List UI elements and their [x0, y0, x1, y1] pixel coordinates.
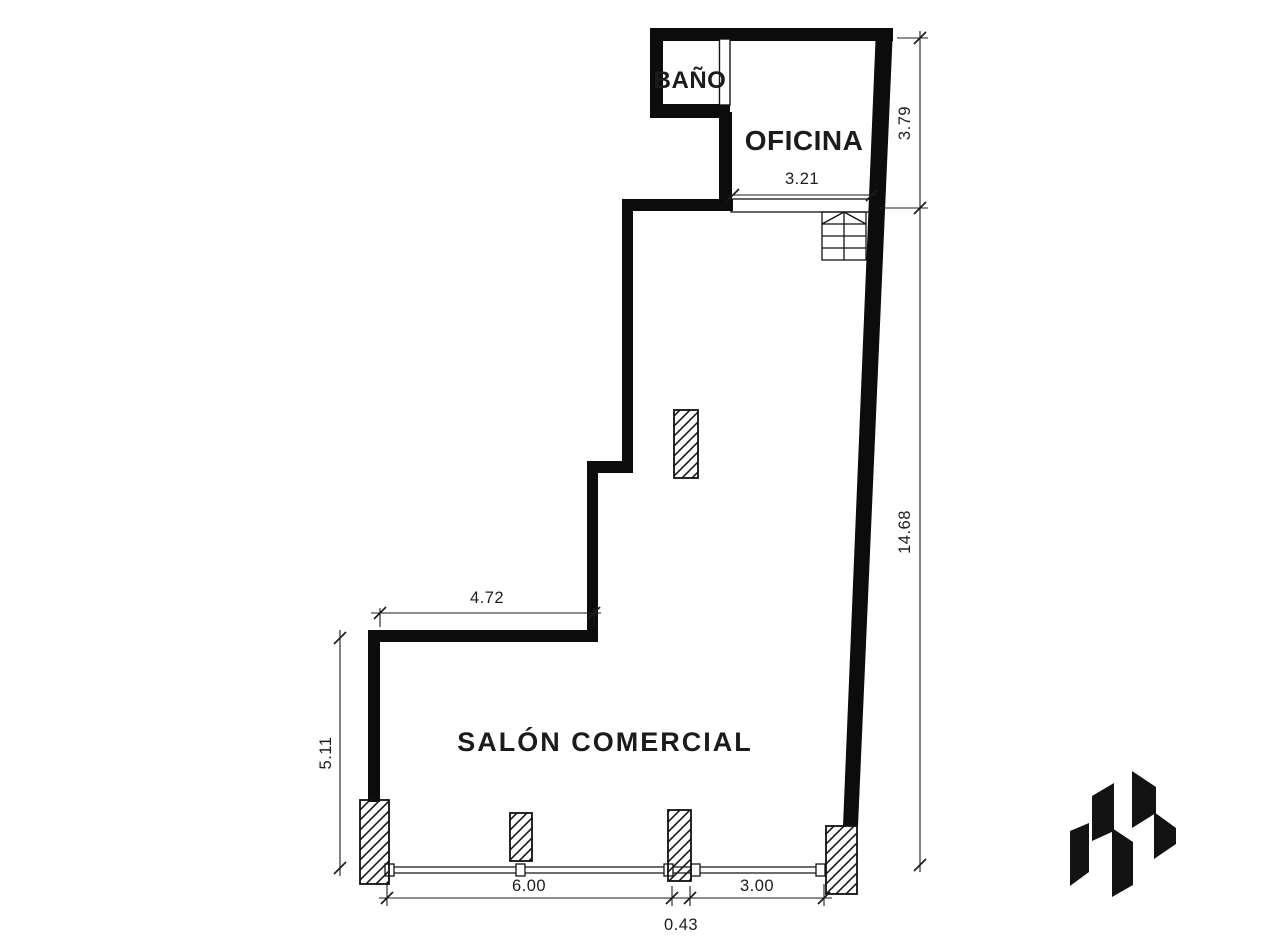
dim-upper-ledge: 4.72 [371, 589, 601, 627]
dim-label-office-height: 3.79 [896, 106, 914, 140]
glazing-mullion [816, 864, 825, 876]
dim-left-side: 5.11 [317, 630, 346, 876]
floor-edge-line [731, 199, 870, 212]
wall-left-upper [622, 199, 633, 473]
stair-direction-line [844, 212, 866, 224]
column-interior [674, 410, 698, 478]
column-front-mid [668, 810, 691, 881]
column-front-small [510, 813, 532, 861]
storefront-glazing [385, 864, 826, 876]
dim-label-upper-ledge: 4.72 [470, 589, 504, 607]
room-label-office: OFICINA [745, 125, 864, 156]
shard-monogram-logo [1070, 771, 1176, 897]
wall-office-left [719, 112, 732, 211]
stair-direction-line [822, 212, 844, 224]
dim-label-left-side: 5.11 [317, 737, 335, 770]
floorplan-drawing: 3.21 3.79 14.68 4.72 5.11 6.00 3.00 0.43 [0, 0, 1267, 950]
floorplan-page: 3.21 3.79 14.68 4.72 5.11 6.00 3.00 0.43 [0, 0, 1267, 950]
dim-label-office-width: 3.21 [785, 170, 819, 188]
dim-label-pillar-width: 0.43 [664, 916, 698, 934]
dim-office-width: 3.21 [727, 170, 878, 201]
dim-label-right-side: 14.68 [896, 510, 914, 554]
room-label-salon: SALÓN COMERCIAL [457, 726, 753, 757]
wall-left-lower [368, 630, 380, 802]
dim-label-storefront-left: 6.00 [512, 877, 546, 895]
room-label-bathroom: BAÑO [654, 66, 727, 94]
dim-label-storefront-right: 3.00 [740, 877, 774, 895]
pillar-right [826, 826, 857, 894]
glazing-mullion [516, 864, 525, 876]
glazing-mullion [691, 864, 700, 876]
wall-bathroom-bottom [650, 104, 730, 118]
wall-main-top [622, 199, 733, 211]
structural-columns [360, 410, 857, 894]
staircase [822, 212, 866, 260]
wall-top [650, 28, 893, 41]
dim-storefront: 6.00 3.00 0.43 [379, 877, 832, 934]
pillar-left [360, 800, 389, 884]
wall-ledge [368, 630, 597, 642]
